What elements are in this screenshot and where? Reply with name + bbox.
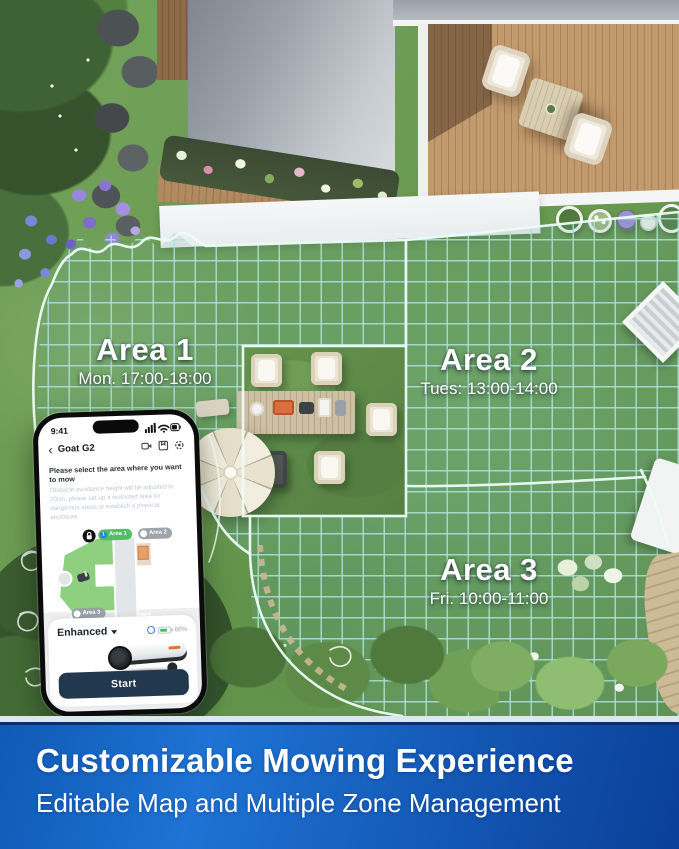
app-title: Goat G2 xyxy=(58,442,95,454)
roof-eave-strip xyxy=(393,0,679,21)
patio-dining-table xyxy=(237,391,355,434)
patio-chair xyxy=(314,451,345,484)
product-graphic: Area 1 Mon. 17:00-18:00 Area 2 Tues: 13:… xyxy=(0,0,679,849)
status-icons xyxy=(145,422,181,433)
map-area-1-badge[interactable]: 1 Area 1 xyxy=(98,529,132,541)
deck-trim xyxy=(418,24,428,204)
phone-notch xyxy=(93,419,139,433)
map-area-2-badge[interactable]: Area 2 xyxy=(138,527,172,539)
banner-subtitle: Editable Map and Multiple Zone Managemen… xyxy=(36,788,679,819)
status-time: 9:41 xyxy=(51,425,68,436)
patio-chair xyxy=(251,354,282,387)
area-1-number: 1 xyxy=(100,531,107,538)
mower-accent xyxy=(168,646,180,650)
battery-status: 60% xyxy=(147,625,187,634)
map-furniture xyxy=(138,546,148,559)
wifi-icon xyxy=(159,425,169,430)
start-button[interactable]: Start xyxy=(58,669,189,699)
grill-tray xyxy=(299,402,314,414)
phone-mockup: 9:41 xyxy=(32,408,207,717)
area-3-schedule: Fri. 10:00-11:00 xyxy=(393,589,585,609)
serving-tray xyxy=(318,398,331,417)
area-1-schedule: Mon. 17:00-18:00 xyxy=(58,369,232,389)
area-2-dot xyxy=(140,530,147,537)
area-3-name: Area 3 xyxy=(393,554,585,587)
control-sheet: Enhanced 60% Start xyxy=(48,615,199,708)
mode-dropdown[interactable]: Enhanced xyxy=(57,625,108,639)
patio-chair xyxy=(366,403,397,436)
food-tray xyxy=(273,400,294,415)
patio-bench xyxy=(195,398,229,417)
video-icon[interactable] xyxy=(141,441,152,451)
area-2-label: Area 2 Tues: 13:00-14:00 xyxy=(393,344,585,399)
flowering-bushes xyxy=(458,616,679,722)
battery-percent: 60% xyxy=(174,625,187,632)
area-2-schedule: Tues: 13:00-14:00 xyxy=(393,379,585,399)
chevron-down-icon[interactable] xyxy=(111,630,117,634)
back-chevron-icon[interactable]: ‹ xyxy=(48,443,53,456)
plate xyxy=(250,402,264,416)
marketing-banner: Customizable Mowing Experience Editable … xyxy=(0,722,679,849)
table-item xyxy=(335,400,346,416)
instruction-block: Please select the area where you want to… xyxy=(39,455,197,528)
app-screen: 9:41 xyxy=(37,414,202,713)
area-3-label: Area 3 Fri. 10:00-11:00 xyxy=(393,554,585,609)
signal-icon xyxy=(145,422,156,432)
battery-level-icon xyxy=(158,626,171,633)
map-guide-icon[interactable] xyxy=(158,440,168,450)
battery-icon xyxy=(171,423,181,430)
patio-chair xyxy=(311,352,342,385)
area-1-name: Area 1 xyxy=(58,334,232,367)
instruction-body: Obstacle avoidance height will be adjust… xyxy=(50,483,187,523)
area-3-dot xyxy=(73,610,80,617)
mower-rear-wheel xyxy=(108,646,133,671)
area-2-name: Area 2 xyxy=(393,344,585,377)
area-1-label: Area 1 Mon. 17:00-18:00 xyxy=(58,334,232,389)
bush-row xyxy=(193,610,499,722)
instruction-title: Please select the area where you want to… xyxy=(49,462,185,484)
settings-gear-icon[interactable] xyxy=(174,440,184,450)
wood-deck-strip xyxy=(157,0,190,80)
banner-title: Customizable Mowing Experience xyxy=(36,742,679,780)
sync-icon xyxy=(147,626,155,634)
